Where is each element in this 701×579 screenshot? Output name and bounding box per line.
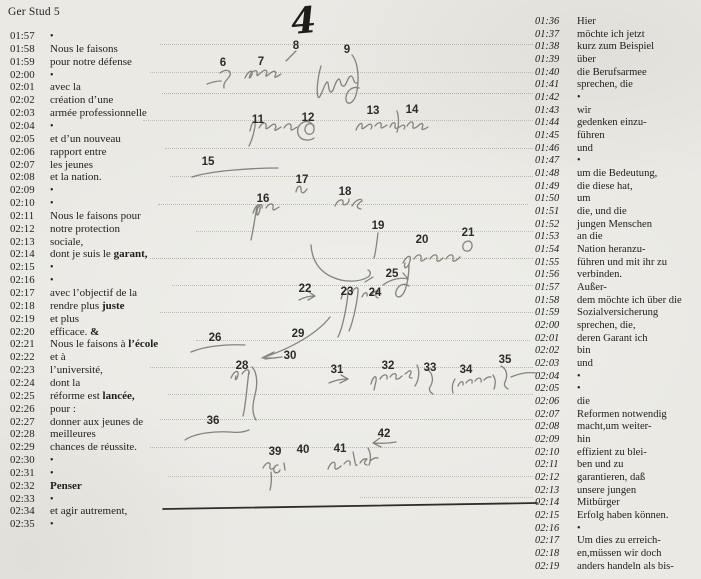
interpretation-transcript-text: und: [577, 358, 593, 369]
source-transcript-row: 02:05et d’un nouveau: [10, 133, 121, 145]
scribble-tick-8: [286, 51, 296, 61]
page-header-label: Ger Stud 5: [8, 6, 60, 18]
interpretation-transcript-row: 01:52jungen Menschen: [535, 219, 652, 231]
interpretation-transcript-timestamp: 02:15: [535, 510, 568, 522]
source-transcript-timestamp: 02:06: [10, 146, 50, 158]
source-transcript-text: et d’un nouveau: [50, 133, 121, 145]
interpretation-transcript-text: sprechen, die: [577, 79, 633, 90]
annotation-number-9: 9: [344, 44, 350, 56]
source-transcript-row: 02:09•: [10, 184, 54, 197]
source-transcript-timestamp: 02:01: [10, 81, 50, 93]
interpretation-transcript-timestamp: 01:47: [535, 155, 568, 167]
interpretation-transcript-timestamp: 01:39: [535, 54, 568, 66]
interpretation-transcript-row: 01:39über: [535, 54, 596, 66]
source-transcript-row: 02:17avec l’objectif de la: [10, 287, 137, 299]
interpretation-transcript-row: 01:50um: [535, 193, 591, 205]
interpretation-transcript-row: 02:13unsere jungen: [535, 485, 636, 497]
interpretation-transcript-row: 01:36Hier: [535, 16, 596, 28]
interpretation-transcript-timestamp: 02:09: [535, 434, 568, 446]
source-transcript-timestamp: 02:12: [10, 223, 50, 235]
source-transcript-row: 02:20efficace. &: [10, 326, 99, 338]
source-transcript-timestamp: 02:14: [10, 248, 50, 260]
interpretation-transcript-timestamp: 02:08: [535, 421, 568, 433]
annotation-number-14: 14: [406, 104, 419, 116]
source-transcript-text: avec la: [50, 81, 81, 93]
interpretation-transcript-text: die, und die: [577, 206, 627, 217]
interpretation-transcript-timestamp: 02:06: [535, 396, 568, 408]
ruled-line: [196, 340, 530, 341]
annotation-number-22: 22: [299, 283, 312, 295]
source-transcript-text: réforme est lancée,: [50, 390, 135, 402]
interpretation-transcript-timestamp: 01:45: [535, 130, 568, 142]
interpretation-transcript-row: 01:40die Berufsarmee: [535, 67, 647, 79]
interpretation-transcript-timestamp: 01:41: [535, 79, 568, 91]
source-transcript-text: armée professionnelle: [50, 107, 147, 119]
interpretation-transcript-timestamp: 02:12: [535, 472, 568, 484]
interpretation-transcript-text: •: [577, 92, 581, 103]
source-transcript-timestamp: 02:04: [10, 120, 50, 132]
source-transcript-text: efficace. &: [50, 326, 99, 338]
ruled-line: [168, 476, 533, 477]
interpretation-transcript-row: 02:07Reformen notwendig: [535, 409, 667, 421]
interpretation-transcript-text: •: [577, 155, 581, 166]
source-transcript-text: pour :: [50, 403, 76, 415]
interpretation-transcript-text: deren Garant ich: [577, 333, 648, 344]
annotation-number-13: 13: [367, 105, 380, 117]
ruled-line: [168, 394, 533, 395]
source-transcript-timestamp: 02:15: [10, 261, 50, 273]
source-transcript-timestamp: 02:33: [10, 493, 50, 505]
interpretation-transcript-row: 02:11ben und zu: [535, 459, 623, 471]
interpretation-transcript-row: 02:01deren Garant ich: [535, 333, 648, 345]
interpretation-transcript-timestamp: 01:59: [535, 307, 568, 319]
interpretation-transcript-text: sprechen, die,: [577, 320, 636, 331]
segment-end-line: [163, 503, 537, 509]
annotation-number-42: 42: [378, 428, 391, 440]
annotation-number-19: 19: [372, 220, 385, 232]
interpretation-transcript-row: 01:58dem möchte ich über die: [535, 295, 682, 307]
ruled-line: [143, 120, 533, 121]
interpretation-transcript-timestamp: 02:04: [535, 371, 568, 383]
source-transcript-text: sociale,: [50, 236, 83, 248]
interpretation-transcript-text: Reformen notwendig: [577, 409, 667, 420]
interpretation-transcript-row: 01:48um die Bedeutung,: [535, 168, 657, 180]
ruled-line: [170, 176, 533, 177]
source-transcript-timestamp: 01:59: [10, 56, 50, 68]
interpretation-transcript-row: 02:03und: [535, 358, 593, 370]
scribble-at-sign-12: [298, 121, 314, 140]
source-transcript-row: 02:12notre protection: [10, 223, 120, 235]
interpretation-transcript-timestamp: 01:40: [535, 67, 568, 79]
interpretation-transcript-timestamp: 02:02: [535, 345, 568, 357]
interpretation-transcript-row: 02:12garantieren, daß: [535, 472, 645, 484]
source-transcript-text: Nous le faisons pour: [50, 210, 141, 222]
source-transcript-row: 02:13sociale,: [10, 236, 83, 248]
interpretation-transcript-row: 01:59Sozialversicherung: [535, 307, 658, 319]
source-transcript-timestamp: 02:23: [10, 364, 50, 376]
interpretation-transcript-text: •: [577, 371, 581, 382]
source-transcript-text: dont la: [50, 377, 80, 389]
interpretation-transcript-timestamp: 02:13: [535, 485, 568, 497]
interpretation-transcript-text: hin: [577, 434, 591, 445]
interpretation-transcript-text: an die: [577, 231, 603, 242]
source-transcript-row: 02:01avec la: [10, 81, 81, 93]
interpretation-transcript-row: 02:08macht,um weiter-: [535, 421, 652, 433]
source-transcript-text: meilleures: [50, 428, 96, 440]
annotation-number-26: 26: [209, 332, 222, 344]
interpretation-transcript-text: wir: [577, 105, 591, 116]
interpretation-transcript-text: Nation heranzu-: [577, 244, 646, 255]
source-transcript-row: 02:00•: [10, 69, 54, 82]
interpretation-transcript-text: en,müssen wir doch: [577, 548, 661, 559]
source-transcript-text: et la nation.: [50, 171, 102, 183]
source-transcript-row: 02:34et agir autrement,: [10, 505, 127, 517]
scribble-stroke-26: [191, 345, 245, 352]
interpretation-transcript-timestamp: 01:46: [535, 143, 568, 155]
interpretation-transcript-row: 01:56verbinden.: [535, 269, 622, 281]
interpretation-transcript-timestamp: 02:05: [535, 383, 568, 395]
source-transcript-text: l’université,: [50, 364, 103, 376]
source-transcript-text: donner aux jeunes de: [50, 416, 143, 428]
annotation-number-28: 28: [236, 360, 249, 372]
interpretation-transcript-row: 01:53an die: [535, 231, 603, 243]
annotation-number-8: 8: [293, 40, 299, 52]
source-transcript-row: 02:08et la nation.: [10, 171, 102, 183]
source-transcript-row: 02:23l’université,: [10, 364, 103, 376]
interpretation-transcript-row: 02:00sprechen, die,: [535, 320, 636, 332]
source-transcript-row: 02:11Nous le faisons pour: [10, 210, 141, 222]
interpretation-transcript-row: 01:41sprechen, die: [535, 79, 633, 91]
annotation-number-11: 11: [252, 114, 264, 126]
ruled-line: [150, 72, 533, 73]
annotation-number-29: 29: [292, 328, 305, 340]
handwritten-page-number: 4: [289, 0, 318, 43]
interpretation-transcript-row: 02:02bin: [535, 345, 591, 357]
source-transcript-text: chances de réussite.: [50, 441, 137, 453]
scribble-arrow-6: [207, 70, 230, 88]
interpretation-transcript-timestamp: 01:42: [535, 92, 568, 104]
source-transcript-timestamp: 02:31: [10, 467, 50, 479]
interpretation-transcript-row: 01:55führen und mit ihr zu: [535, 257, 667, 269]
source-transcript-text: rendre plus juste: [50, 300, 125, 312]
interpretation-transcript-timestamp: 02:03: [535, 358, 568, 370]
source-transcript-timestamp: 02:11: [10, 210, 50, 222]
interpretation-transcript-row: 01:45führen: [535, 130, 605, 142]
annotation-number-21: 21: [462, 227, 475, 239]
interpretation-transcript-text: Mitbürger: [577, 497, 620, 508]
interpretation-transcript-text: •: [577, 383, 581, 394]
interpretation-transcript-text: Hier: [577, 16, 596, 27]
annotation-number-40: 40: [297, 444, 310, 456]
interpretation-transcript-text: Erfolg haben können.: [577, 510, 669, 521]
interpretation-transcript-row: 01:57Außer-: [535, 282, 607, 294]
annotation-number-17: 17: [296, 174, 309, 186]
source-transcript-row: 02:24dont la: [10, 377, 80, 389]
source-transcript-timestamp: 02:24: [10, 377, 50, 389]
source-transcript-timestamp: 02:32: [10, 480, 50, 492]
source-transcript-timestamp: 02:26: [10, 403, 50, 415]
annotation-number-16: 16: [257, 193, 270, 205]
annotation-number-36: 36: [207, 415, 220, 427]
interpretation-transcript-text: bin: [577, 345, 591, 356]
interpretation-transcript-text: gedenken einzu-: [577, 117, 647, 128]
annotation-number-20: 20: [416, 234, 429, 246]
source-transcript-timestamp: 02:29: [10, 441, 50, 453]
source-transcript-timestamp: 02:22: [10, 351, 50, 363]
source-transcript-timestamp: 02:21: [10, 338, 50, 350]
source-transcript-text: pour notre défense: [50, 56, 132, 68]
annotation-number-7: 7: [258, 56, 264, 68]
scribble-garant-20: [396, 255, 460, 297]
interpretation-transcript-text: um: [577, 193, 591, 204]
source-transcript-text: rapport entre: [50, 146, 107, 158]
interpretation-transcript-row: 02:19anders handeln als bis-: [535, 561, 674, 573]
source-transcript-text: •: [50, 455, 54, 466]
source-transcript-text: •: [50, 275, 54, 286]
interpretation-transcript-text: und: [577, 143, 593, 154]
source-transcript-timestamp: 02:30: [10, 454, 50, 466]
interpretation-transcript-row: 01:44gedenken einzu-: [535, 117, 647, 129]
source-transcript-row: 02:16•: [10, 274, 54, 287]
interpretation-transcript-timestamp: 02:01: [535, 333, 568, 345]
interpretation-transcript-row: 02:15Erfolg haben können.: [535, 510, 669, 522]
source-transcript-timestamp: 02:08: [10, 171, 50, 183]
interpretation-transcript-timestamp: 02:14: [535, 497, 568, 509]
interpretation-transcript-timestamp: 01:54: [535, 244, 568, 256]
source-transcript-row: 02:33•: [10, 493, 54, 506]
annotation-number-31: 31: [331, 364, 344, 376]
interpretation-transcript-text: unsere jungen: [577, 485, 636, 496]
interpretation-transcript-row: 01:38kurz zum Beispiel: [535, 41, 654, 53]
source-transcript-row: 02:30•: [10, 454, 54, 467]
interpretation-transcript-text: macht,um weiter-: [577, 421, 652, 432]
annotation-number-39: 39: [269, 446, 282, 458]
interpretation-transcript-timestamp: 01:37: [535, 29, 568, 41]
interpretation-transcript-text: führen: [577, 130, 605, 141]
annotation-number-15: 15: [202, 156, 215, 168]
interpretation-transcript-row: 02:14Mitbürger: [535, 497, 620, 509]
source-transcript-row: 02:28meilleures: [10, 428, 96, 440]
source-transcript-timestamp: 02:34: [10, 505, 50, 517]
source-transcript-timestamp: 01:57: [10, 30, 50, 42]
interpretation-transcript-text: die: [577, 396, 590, 407]
interpretation-transcript-text: jungen Menschen: [577, 219, 652, 230]
source-transcript-row: 02:29chances de réussite.: [10, 441, 137, 453]
interpretation-transcript-timestamp: 01:51: [535, 206, 568, 218]
interpretation-transcript-row: 01:37möchte ich jetzt: [535, 29, 645, 41]
scribble-bracket-dash-35: [501, 366, 536, 389]
interpretation-transcript-timestamp: 01:57: [535, 282, 568, 294]
source-transcript-row: 02:32Penser: [10, 480, 82, 492]
interpretation-transcript-text: führen und mit ihr zu: [577, 257, 667, 268]
source-transcript-timestamp: 02:17: [10, 287, 50, 299]
interpretation-transcript-text: anders handeln als bis-: [577, 561, 674, 572]
interpretation-transcript-text: über: [577, 54, 596, 65]
interpretation-transcript-row: 01:54Nation heranzu-: [535, 244, 646, 256]
ruled-line: [160, 312, 533, 313]
annotation-number-32: 32: [382, 360, 395, 372]
source-transcript-row: 02:14dont je suis le garant,: [10, 248, 147, 260]
source-transcript-row: 02:06rapport entre: [10, 146, 107, 158]
source-transcript-text: •: [50, 198, 54, 209]
interpretation-transcript-text: die diese hat,: [577, 181, 633, 192]
source-transcript-text: les jeunes: [50, 159, 93, 171]
source-transcript-row: 02:02création d’une: [10, 94, 113, 106]
interpretation-transcript-timestamp: 02:07: [535, 409, 568, 421]
interpretation-transcript-timestamp: 01:58: [535, 295, 568, 307]
ruled-line: [196, 231, 533, 232]
interpretation-transcript-row: 02:16•: [535, 523, 581, 535]
source-transcript-timestamp: 02:20: [10, 326, 50, 338]
annotation-number-41: 41: [334, 443, 347, 455]
scribble-stroke-36: [185, 430, 249, 440]
source-transcript-timestamp: 02:00: [10, 69, 50, 81]
interpretation-transcript-text: dem möchte ich über die: [577, 295, 682, 306]
annotation-number-25: 25: [386, 268, 399, 280]
source-transcript-timestamp: 02:10: [10, 197, 50, 209]
interpretation-transcript-text: Um dies zu erreich-: [577, 535, 661, 546]
source-transcript-text: •: [50, 70, 54, 81]
interpretation-transcript-timestamp: 02:18: [535, 548, 568, 560]
annotation-number-24: 24: [369, 287, 382, 299]
source-transcript-text: •: [50, 121, 54, 132]
scribble-reussite-34: [452, 375, 495, 393]
source-transcript-row: 02:03armée professionnelle: [10, 107, 147, 119]
interpretation-transcript-timestamp: 02:00: [535, 320, 568, 332]
annotation-number-6: 6: [220, 57, 226, 69]
source-transcript-row: 02:21Nous le faisons à l’école: [10, 338, 158, 350]
scribble-arrow-31: [329, 375, 348, 383]
scribble-loop-21: [463, 241, 472, 251]
source-transcript-text: et plus: [50, 313, 79, 325]
source-transcript-timestamp: 02:27: [10, 416, 50, 428]
source-transcript-row: 01:57•: [10, 30, 54, 43]
source-transcript-timestamp: 02:28: [10, 428, 50, 440]
source-transcript-text: et agir autrement,: [50, 505, 127, 517]
source-transcript-text: création d’une: [50, 94, 113, 106]
source-transcript-row: 02:25réforme est lancée,: [10, 390, 135, 402]
source-transcript-timestamp: 02:35: [10, 518, 50, 530]
interpretation-transcript-row: 01:43wir: [535, 105, 591, 117]
source-transcript-row: 02:18rendre plus juste: [10, 300, 125, 312]
annotation-number-23: 23: [341, 286, 354, 298]
interpretation-transcript-text: garantieren, daß: [577, 472, 645, 483]
interpretation-transcript-text: kurz zum Beispiel: [577, 41, 654, 52]
source-transcript-text: •: [50, 31, 54, 42]
interpretation-transcript-text: möchte ich jetzt: [577, 29, 645, 40]
source-transcript-text: Nous le faisons à l’école: [50, 338, 158, 350]
source-transcript-timestamp: 02:02: [10, 94, 50, 106]
source-transcript-text: et à: [50, 351, 66, 363]
interpretation-transcript-timestamp: 02:11: [535, 459, 568, 471]
source-transcript-text: dont je suis le garant,: [50, 248, 147, 260]
interpretation-transcript-timestamp: 02:17: [535, 535, 568, 547]
interpretation-transcript-row: 01:51die, und die: [535, 206, 627, 218]
annotation-number-12: 12: [302, 112, 315, 124]
interpretation-transcript-row: 01:49die diese hat,: [535, 181, 633, 193]
interpretation-transcript-timestamp: 01:48: [535, 168, 568, 180]
interpretation-transcript-row: 01:46und: [535, 143, 593, 155]
interpretation-transcript-row: 02:09hin: [535, 434, 591, 446]
interpretation-transcript-timestamp: 01:36: [535, 16, 568, 28]
interpretation-transcript-text: die Berufsarmee: [577, 67, 647, 78]
source-transcript-text: notre protection: [50, 223, 120, 235]
source-transcript-timestamp: 02:09: [10, 184, 50, 196]
interpretation-transcript-row: 02:17Um dies zu erreich-: [535, 535, 661, 547]
source-transcript-row: 02:15•: [10, 261, 54, 274]
interpretation-transcript-text: Sozialversicherung: [577, 307, 658, 318]
interpretation-transcript-row: 01:42•: [535, 92, 581, 104]
interpretation-transcript-text: ben und zu: [577, 459, 623, 470]
annotation-number-35: 35: [499, 354, 512, 366]
source-transcript-timestamp: 02:18: [10, 300, 50, 312]
ruled-line: [158, 204, 528, 205]
interpretation-transcript-timestamp: 01:50: [535, 193, 568, 205]
source-transcript-row: 02:35•: [10, 518, 54, 531]
interpretation-transcript-timestamp: 01:55: [535, 257, 568, 269]
source-transcript-text: avec l’objectif de la: [50, 287, 137, 299]
interpretation-transcript-text: um die Bedeutung,: [577, 168, 657, 179]
annotation-number-34: 34: [460, 364, 473, 376]
ruled-line: [165, 148, 533, 149]
interpretation-transcript-timestamp: 01:52: [535, 219, 568, 231]
scribble-prot-16: [251, 204, 279, 240]
ruled-line: [162, 93, 533, 94]
annotation-number-30: 30: [284, 350, 297, 362]
interpretation-transcript-text: verbinden.: [577, 269, 622, 280]
scribble-u-17: [296, 186, 307, 193]
interpretation-transcript-text: Außer-: [577, 282, 607, 293]
interpretation-transcript-timestamp: 01:43: [535, 105, 568, 117]
source-transcript-timestamp: 02:05: [10, 133, 50, 145]
source-transcript-row: 01:58Nous le faisons: [10, 43, 118, 55]
source-transcript-text: •: [50, 519, 54, 530]
interpretation-transcript-timestamp: 02:16: [535, 523, 568, 535]
source-transcript-row: 02:07les jeunes: [10, 159, 93, 171]
source-transcript-text: Penser: [50, 480, 82, 492]
interpretation-transcript-timestamp: 02:10: [535, 447, 568, 459]
interpretation-transcript-timestamp: 01:38: [535, 41, 568, 53]
interpretation-transcript-timestamp: 01:49: [535, 181, 568, 193]
source-transcript-text: •: [50, 185, 54, 196]
source-transcript-row: 02:27donner aux jeunes de: [10, 416, 143, 428]
source-transcript-row: 02:04•: [10, 120, 54, 133]
annotation-number-33: 33: [424, 362, 437, 374]
source-transcript-timestamp: 02:16: [10, 274, 50, 286]
ruled-line: [360, 497, 533, 498]
ruled-line: [150, 258, 533, 259]
interpretation-transcript-row: 02:18en,müssen wir doch: [535, 548, 661, 560]
source-transcript-timestamp: 01:58: [10, 43, 50, 55]
source-transcript-text: Nous le faisons: [50, 43, 118, 55]
interpretation-transcript-row: 02:05•: [535, 383, 581, 395]
source-transcript-row: 02:10•: [10, 197, 54, 210]
scribble-prof-9: [317, 55, 359, 103]
interpretation-transcript-row: 02:06die: [535, 396, 590, 408]
source-transcript-text: •: [50, 262, 54, 273]
source-transcript-text: •: [50, 494, 54, 505]
scribble-jeunes-32: [371, 365, 419, 390]
source-transcript-text: •: [50, 468, 54, 479]
scanned-transcript-page: Ger Stud 5 4 01:57•01:58Nous le faisons0…: [0, 0, 701, 579]
source-transcript-row: 02:22et à: [10, 351, 66, 363]
interpretation-transcript-text: •: [577, 523, 581, 534]
interpretation-transcript-timestamp: 01:53: [535, 231, 568, 243]
source-transcript-timestamp: 02:03: [10, 107, 50, 119]
source-transcript-timestamp: 02:25: [10, 390, 50, 402]
source-transcript-timestamp: 02:07: [10, 159, 50, 171]
source-transcript-row: 01:59pour notre défense: [10, 56, 132, 68]
